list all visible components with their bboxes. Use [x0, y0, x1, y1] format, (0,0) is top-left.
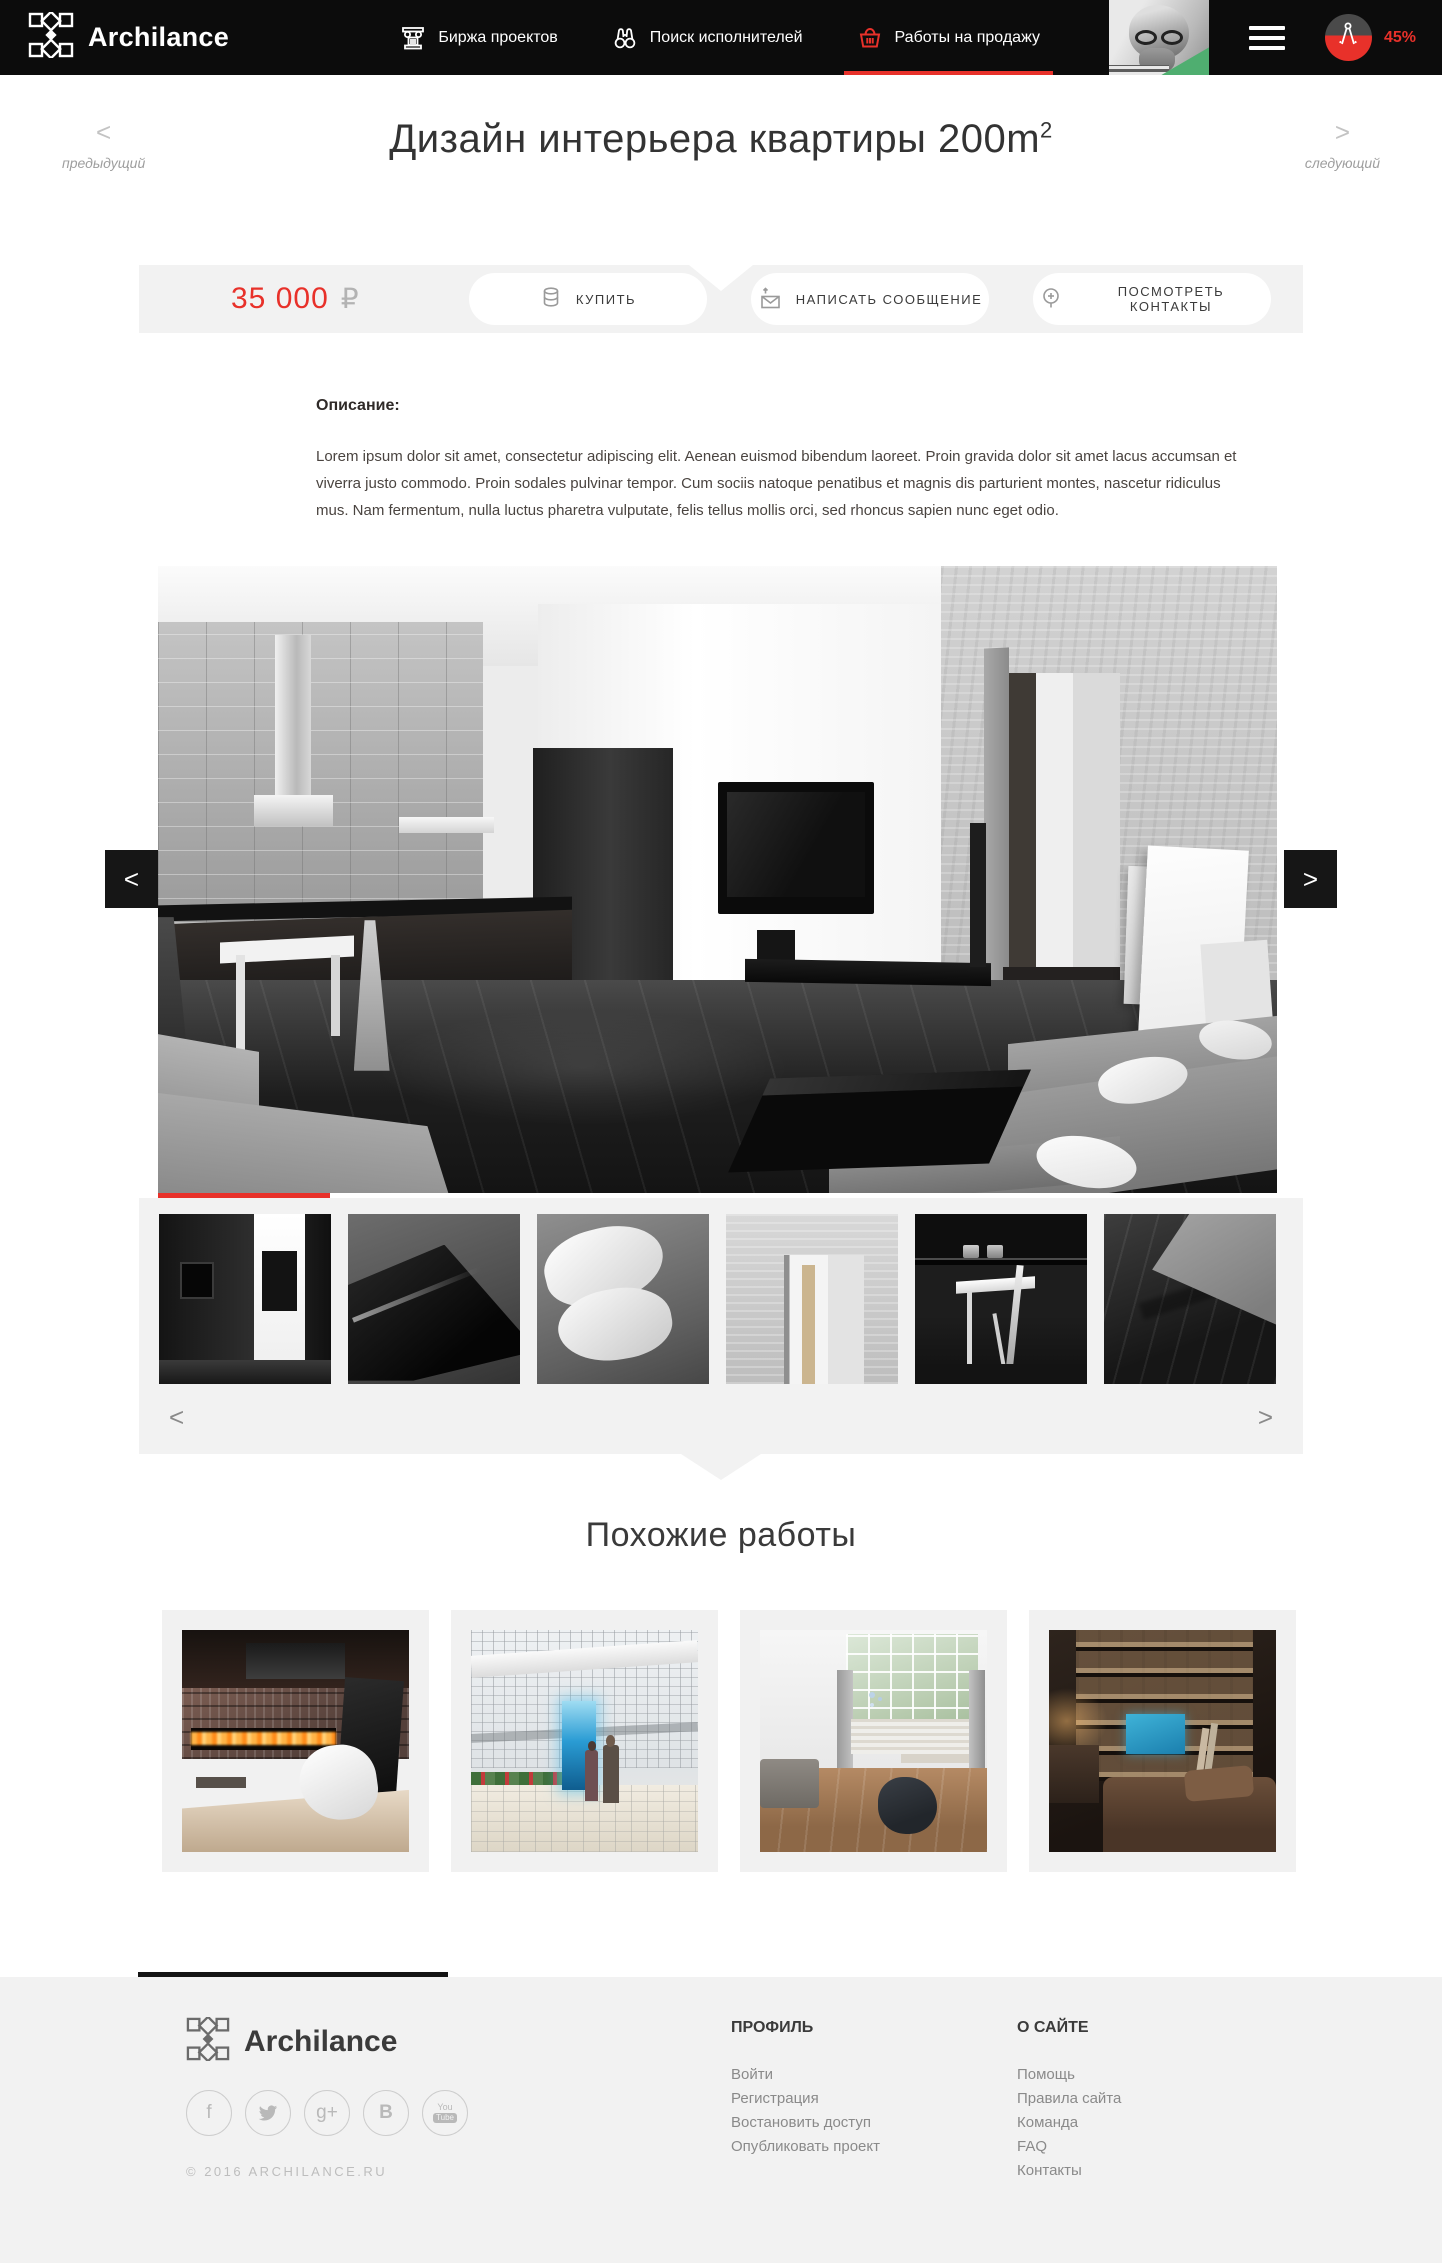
- similar-work-photo: [471, 1630, 698, 1852]
- nav-item-label: Поиск исполнителей: [650, 29, 803, 47]
- user-avatar[interactable]: [1109, 0, 1209, 75]
- similar-works-section: Похожие работы: [0, 1454, 1442, 1872]
- footer-link-team[interactable]: Команда: [1017, 2111, 1121, 2135]
- header: Archilance Биржа проектов: [0, 0, 1442, 75]
- send-message-label: НАПИСАТЬ СООБЩЕНИЕ: [796, 292, 983, 307]
- similar-work-atrium[interactable]: [451, 1610, 718, 1872]
- similar-work-fireplace[interactable]: [162, 1610, 429, 1872]
- price-value: 35 000: [231, 282, 329, 316]
- nav-item-works-for-sale[interactable]: Работы на продажу: [830, 0, 1067, 75]
- gallery-prev-button[interactable]: <: [105, 850, 158, 908]
- prev-work-label: предыдущий: [62, 155, 145, 171]
- footer-link-register[interactable]: Регистрация: [731, 2087, 880, 2111]
- main-photo-interior: [158, 566, 1277, 1193]
- similar-works-heading: Похожие работы: [0, 1516, 1442, 1555]
- compass-icon: [1333, 20, 1363, 55]
- main-nav: Биржа проектов Поиск исполнителей: [373, 0, 1067, 75]
- thumbnail-strip: < >: [139, 1198, 1303, 1454]
- pin-icon: [1039, 286, 1063, 313]
- thumbnail-dining-set[interactable]: [915, 1214, 1087, 1384]
- archilance-logo-icon: [28, 12, 74, 63]
- chevron-right-icon: >: [1303, 864, 1318, 895]
- brand-name: Archilance: [88, 22, 229, 53]
- archilance-logo-icon: [186, 2017, 230, 2066]
- footer: Archilance f g+ B YouTube © 2016 ARCHILA…: [0, 1977, 1442, 2263]
- similar-work-living-room[interactable]: [740, 1610, 1007, 1872]
- menu-icon[interactable]: [1249, 26, 1285, 50]
- footer-column-title: ПРОФИЛЬ: [731, 2019, 880, 2037]
- price-currency: ₽: [341, 282, 359, 315]
- copyright: © 2016 ARCHILANCE.RU: [186, 2164, 1303, 2179]
- profile-progress-badge[interactable]: [1325, 14, 1372, 61]
- similar-work-photo: [760, 1630, 987, 1852]
- send-message-button[interactable]: НАПИСАТЬ СООБЩЕНИЕ: [751, 273, 989, 325]
- footer-column-title: О САЙТЕ: [1017, 2019, 1121, 2037]
- footer-brand-name: Archilance: [244, 2025, 397, 2059]
- google-plus-icon[interactable]: g+: [304, 2090, 350, 2136]
- description-section: Описание: Lorem ipsum dolor sit amet, co…: [139, 333, 1303, 566]
- twitter-icon[interactable]: [245, 2090, 291, 2136]
- envelope-icon: [758, 286, 782, 313]
- thumbnail-kitchen-niche[interactable]: [159, 1214, 331, 1384]
- chevron-left-icon: <: [124, 864, 139, 895]
- chevron-left-icon: <: [169, 1402, 184, 1432]
- tv-screen: [718, 782, 875, 914]
- footer-link-rules[interactable]: Правила сайта: [1017, 2087, 1121, 2111]
- footer-link-faq[interactable]: FAQ: [1017, 2135, 1121, 2159]
- thumbnail-pillows[interactable]: [537, 1214, 709, 1384]
- similar-works-cards: [162, 1610, 1442, 1872]
- work-header: < предыдущий Дизайн интерьера квартиры 2…: [0, 75, 1442, 265]
- page-title: Дизайн интерьера квартиры 200m2: [0, 75, 1442, 162]
- youtube-icon[interactable]: YouTube: [422, 2090, 468, 2136]
- buy-button-label: КУПИТЬ: [576, 292, 636, 307]
- nav-item-label: Работы на продажу: [895, 29, 1040, 47]
- column-icon: [400, 25, 426, 51]
- page: Archilance Биржа проектов: [0, 0, 1442, 2263]
- nav-item-projects[interactable]: Биржа проектов: [373, 0, 584, 75]
- brand[interactable]: Archilance: [0, 12, 229, 63]
- nav-item-label: Биржа проектов: [438, 29, 557, 47]
- footer-link-login[interactable]: Войти: [731, 2063, 880, 2087]
- facebook-icon[interactable]: f: [186, 2090, 232, 2136]
- prev-work-button[interactable]: < предыдущий: [62, 119, 145, 171]
- footer-link-contacts[interactable]: Контакты: [1017, 2159, 1121, 2183]
- thumbnail-coffee-table[interactable]: [348, 1214, 520, 1384]
- similar-work-library[interactable]: [1029, 1610, 1296, 1872]
- next-work-label: следующий: [1305, 155, 1380, 171]
- nav-item-performers[interactable]: Поиск исполнителей: [585, 0, 830, 75]
- price: 35 000 ₽: [231, 282, 359, 316]
- coins-icon: [540, 286, 562, 313]
- footer-column-about: О САЙТЕ Помощь Правила сайта Команда FAQ…: [1017, 2019, 1121, 2183]
- next-work-button[interactable]: > следующий: [1305, 119, 1380, 171]
- buy-button[interactable]: КУПИТЬ: [469, 273, 707, 325]
- chevron-right-icon: >: [1258, 1402, 1273, 1432]
- similar-work-photo: [182, 1630, 409, 1852]
- chevron-right-icon: >: [1305, 119, 1380, 145]
- thumbnails-prev-button[interactable]: <: [169, 1404, 184, 1430]
- view-contacts-label: ПОСМОТРЕТЬ КОНТАКТЫ: [1077, 284, 1265, 314]
- basket-icon: [857, 25, 883, 51]
- chevron-left-icon: <: [62, 119, 145, 145]
- description-heading: Описание:: [316, 397, 1303, 415]
- description-text: Lorem ipsum dolor sit amet, consectetur …: [316, 443, 1245, 524]
- thumbnail-sofa-corner[interactable]: [1104, 1214, 1276, 1384]
- view-contacts-button[interactable]: ПОСМОТРЕТЬ КОНТАКТЫ: [1033, 273, 1271, 325]
- binoculars-icon: [612, 25, 638, 51]
- footer-column-profile: ПРОФИЛЬ Войти Регистрация Востановить до…: [731, 2019, 880, 2159]
- price-action-bar: 35 000 ₽ КУПИТЬ: [139, 265, 1303, 333]
- gallery: < >: [0, 566, 1442, 1198]
- vk-icon[interactable]: B: [363, 2090, 409, 2136]
- gallery-next-button[interactable]: >: [1284, 850, 1337, 908]
- profile-progress-value: 45%: [1384, 29, 1416, 47]
- thumbnails-next-button[interactable]: >: [1258, 1404, 1273, 1430]
- thumbnail-doorway[interactable]: [726, 1214, 898, 1384]
- footer-link-help[interactable]: Помощь: [1017, 2063, 1121, 2087]
- action-buttons: КУПИТЬ НАПИСАТЬ СООБЩЕНИЕ: [469, 273, 1271, 325]
- footer-link-restore-access[interactable]: Востановить доступ: [731, 2111, 880, 2135]
- footer-link-publish-project[interactable]: Опубликовать проект: [731, 2135, 880, 2159]
- similar-work-photo: [1049, 1630, 1276, 1852]
